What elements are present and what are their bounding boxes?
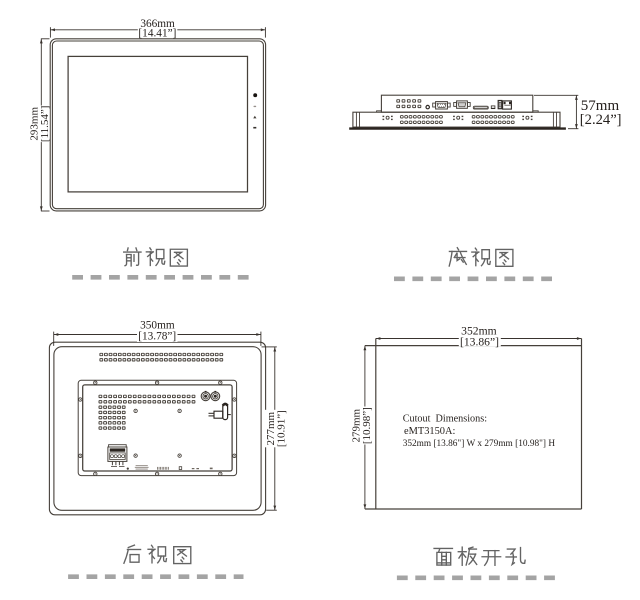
svg-text:[10.98”]: [10.98”] (361, 407, 373, 444)
svg-text:[11.54”]: [11.54”] (39, 106, 51, 143)
svg-text:[14.41”]: [14.41”] (138, 28, 176, 40)
svg-text:[13.78”]: [13.78”] (138, 331, 176, 343)
svg-text:352mm [13.86"] W x 279mm [10.9: 352mm [13.86"] W x 279mm [10.98"] H (403, 439, 556, 449)
svg-text:350mm: 350mm (140, 319, 175, 331)
svg-text:[10.91”]: [10.91”] (275, 410, 287, 447)
svg-text:Cutout Dimensions:: Cutout Dimensions: (403, 413, 487, 424)
svg-text:[2.24”]: [2.24”] (580, 112, 622, 128)
svg-text:eMT3150A:: eMT3150A: (404, 426, 455, 437)
svg-text:[13.86”]: [13.86”] (460, 335, 499, 348)
